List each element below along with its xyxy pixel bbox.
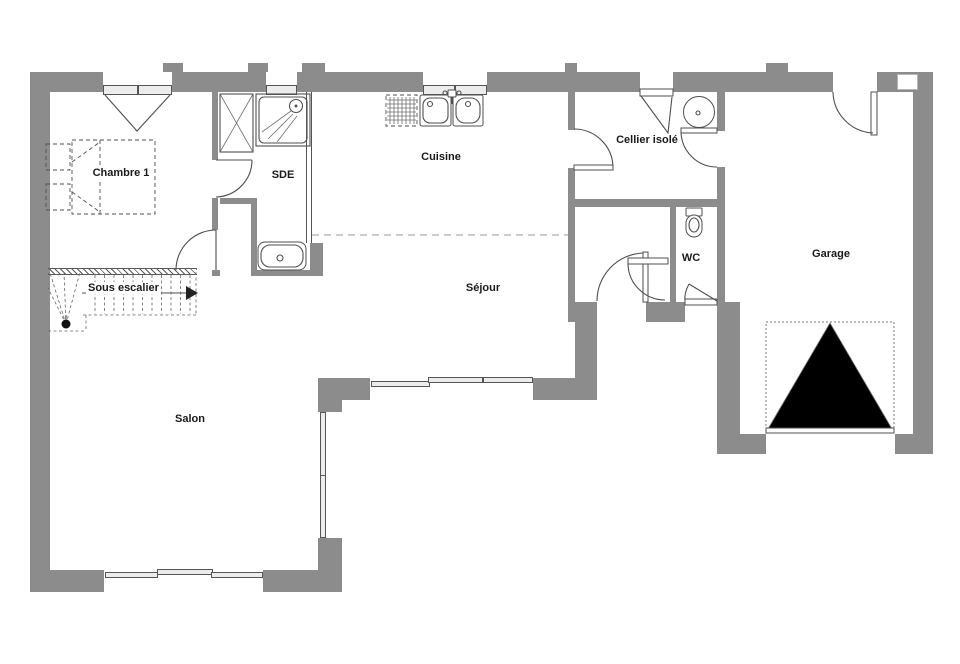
kitchen-sink bbox=[386, 90, 483, 126]
cuisine-cellier-door bbox=[574, 129, 613, 170]
garage-cellier-door bbox=[681, 128, 717, 167]
stairs-label: Sous escalier bbox=[86, 282, 161, 294]
floor-plan: Chambre 1 SDE Cuisine Cellier isolé WC G… bbox=[0, 0, 960, 664]
chambre-window-swing bbox=[105, 95, 170, 131]
sde-door bbox=[216, 160, 252, 197]
room-label-cellier: Cellier isolé bbox=[614, 134, 680, 146]
stairs bbox=[48, 272, 198, 331]
room-label-wc: WC bbox=[680, 252, 702, 264]
toilet bbox=[686, 208, 702, 237]
room-label-garage: Garage bbox=[810, 248, 852, 260]
water-heater bbox=[684, 97, 715, 128]
bathtub bbox=[258, 242, 306, 270]
closet bbox=[220, 94, 253, 152]
wc-door bbox=[685, 284, 717, 305]
cellier-entry-door bbox=[640, 89, 673, 133]
room-label-cuisine: Cuisine bbox=[419, 151, 463, 163]
room-label-sde: SDE bbox=[270, 169, 297, 181]
garage-side-door bbox=[833, 92, 877, 135]
garage-door bbox=[766, 322, 894, 433]
shower bbox=[256, 94, 310, 146]
room-label-salon: Salon bbox=[173, 413, 207, 425]
stairs-direction-arrow-icon bbox=[186, 286, 198, 300]
chambre-door bbox=[176, 230, 216, 270]
plan-symbols bbox=[0, 0, 960, 664]
stairs-newel-post bbox=[62, 320, 71, 329]
room-label-chambre-1: Chambre 1 bbox=[91, 167, 152, 179]
room-label-sejour: Séjour bbox=[464, 282, 502, 294]
